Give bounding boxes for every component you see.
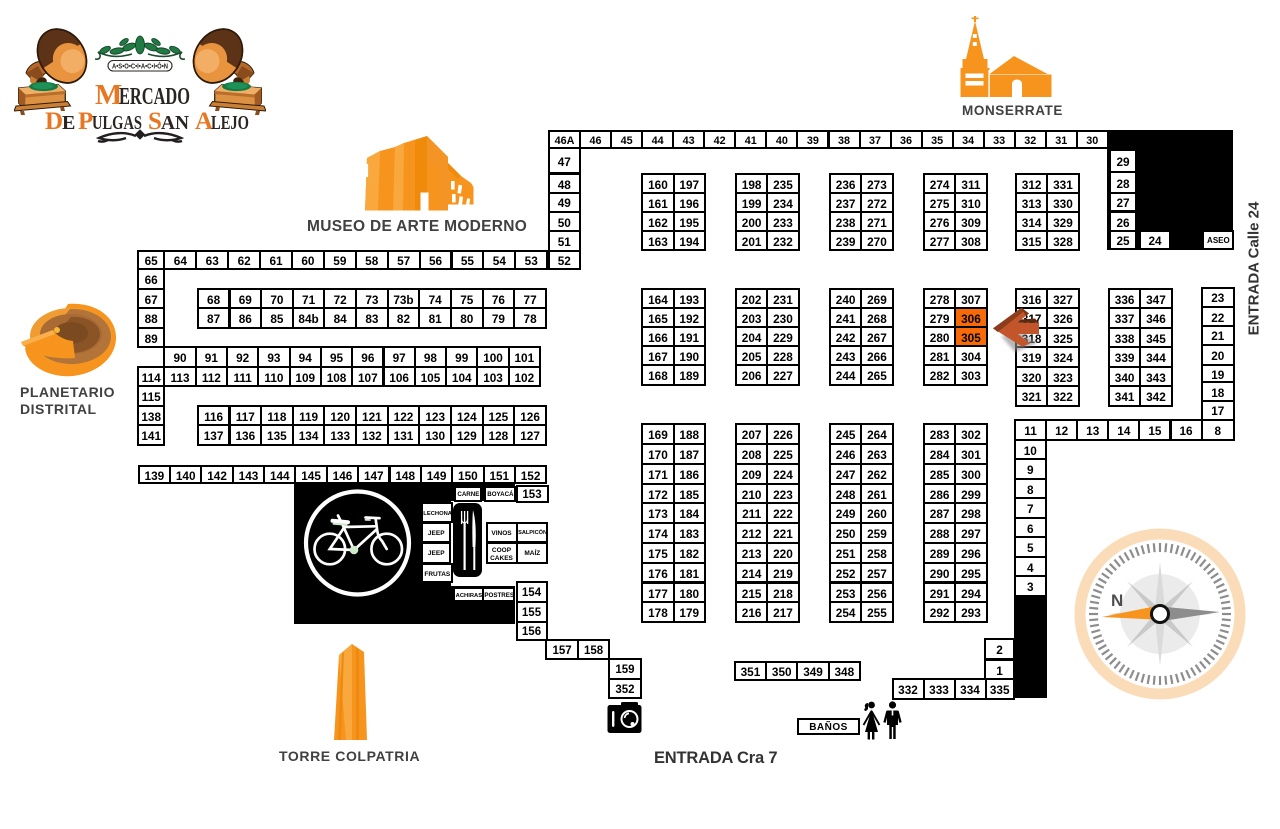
svg-text:AN: AN bbox=[161, 112, 190, 134]
svg-text:A•S•O•C•I•A•C•I•Ó•N: A•S•O•C•I•A•C•I•Ó•N bbox=[112, 62, 168, 71]
svg-text:ERCADO: ERCADO bbox=[119, 84, 190, 110]
svg-text:E: E bbox=[62, 112, 75, 134]
svg-text:ULGAS: ULGAS bbox=[92, 112, 142, 134]
svg-text:N: N bbox=[1111, 591, 1123, 610]
svg-text:LEJO: LEJO bbox=[211, 112, 249, 134]
svg-text:P: P bbox=[78, 108, 93, 135]
svg-text:D: D bbox=[45, 108, 63, 135]
svg-text:S: S bbox=[148, 108, 162, 135]
